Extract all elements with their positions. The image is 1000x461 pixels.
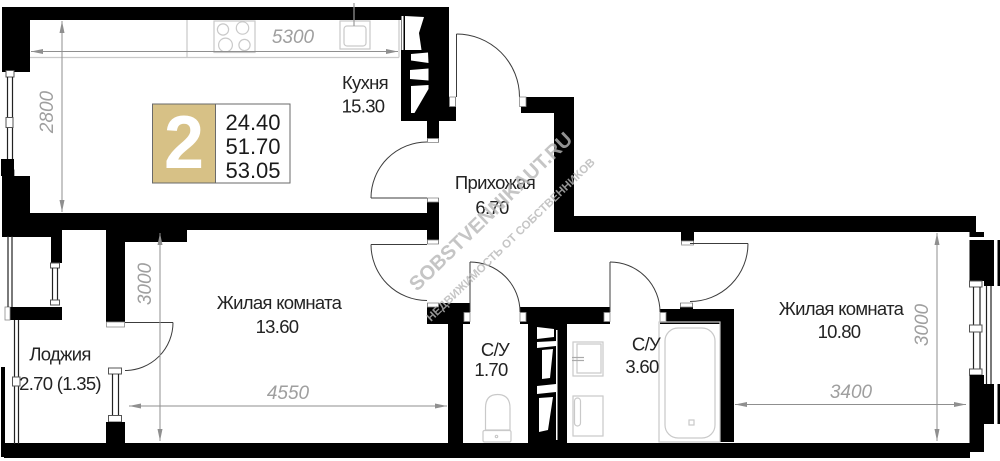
- svg-text:5300: 5300: [272, 27, 315, 48]
- svg-text:53.05: 53.05: [225, 158, 280, 183]
- svg-text:Жилая комната: Жилая комната: [217, 292, 343, 313]
- svg-text:Лоджия: Лоджия: [29, 344, 90, 365]
- svg-text:2.70 (1.35): 2.70 (1.35): [19, 373, 101, 394]
- svg-text:24.40: 24.40: [225, 110, 280, 135]
- svg-text:10.80: 10.80: [818, 321, 861, 342]
- svg-text:13.60: 13.60: [256, 316, 299, 337]
- svg-text:3400: 3400: [830, 382, 873, 403]
- svg-text:1.70: 1.70: [474, 359, 508, 380]
- svg-text:4550: 4550: [267, 383, 310, 404]
- svg-text:С/У: С/У: [481, 339, 510, 360]
- svg-text:3000: 3000: [912, 303, 933, 346]
- svg-text:Кухня: Кухня: [342, 72, 388, 93]
- svg-text:3000: 3000: [135, 262, 156, 305]
- svg-text:2: 2: [164, 100, 204, 184]
- svg-text:15.30: 15.30: [342, 96, 385, 117]
- svg-text:С/У: С/У: [632, 334, 661, 355]
- svg-text:Жилая комната: Жилая комната: [779, 298, 905, 319]
- svg-text:51.70: 51.70: [225, 134, 280, 159]
- svg-text:3.60: 3.60: [625, 356, 659, 377]
- svg-text:2800: 2800: [37, 90, 58, 134]
